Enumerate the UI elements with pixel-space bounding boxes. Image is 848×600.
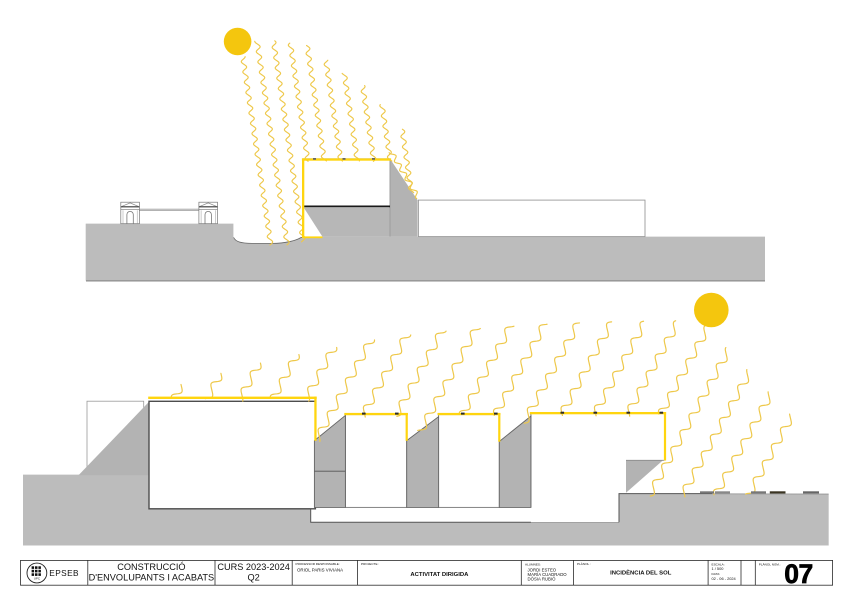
svg-text:CONSTRUCCIÓ: CONSTRUCCIÓ xyxy=(117,562,185,572)
svg-text:02 - 06 - 2024: 02 - 06 - 2024 xyxy=(712,576,737,581)
svg-text:CURS 2023-2024: CURS 2023-2024 xyxy=(217,562,290,572)
svg-text:PLÀNOL NÚM.:: PLÀNOL NÚM.: xyxy=(759,563,781,567)
svg-text:ORIOL PARIS VIVIANA: ORIOL PARIS VIVIANA xyxy=(297,567,343,572)
svg-text:PROFESSOR RESPONSABLE:: PROFESSOR RESPONSABLE: xyxy=(296,562,340,566)
svg-text:Q2: Q2 xyxy=(247,573,259,583)
svg-text:INCIDÈNCIA DEL SOL: INCIDÈNCIA DEL SOL xyxy=(610,569,672,577)
svg-text:PLÀNOL :: PLÀNOL : xyxy=(577,562,591,566)
svg-text:DÒSIA RUBIÓ: DÒSIA RUBIÓ xyxy=(528,577,557,582)
svg-text:D'ENVOLUPANTS I ACABATS: D'ENVOLUPANTS I ACABATS xyxy=(89,573,214,583)
svg-text:UPC: UPC xyxy=(34,577,41,581)
svg-text:1 / 500: 1 / 500 xyxy=(712,566,725,571)
svg-text:ALUMNES:: ALUMNES: xyxy=(525,563,541,567)
svg-text:PROJECTE :: PROJECTE : xyxy=(361,562,379,566)
svg-text:ACTIVITAT DIRIGIDA: ACTIVITAT DIRIGIDA xyxy=(410,572,469,578)
svg-text:EPSEB: EPSEB xyxy=(49,568,79,578)
svg-text:07: 07 xyxy=(784,559,812,589)
